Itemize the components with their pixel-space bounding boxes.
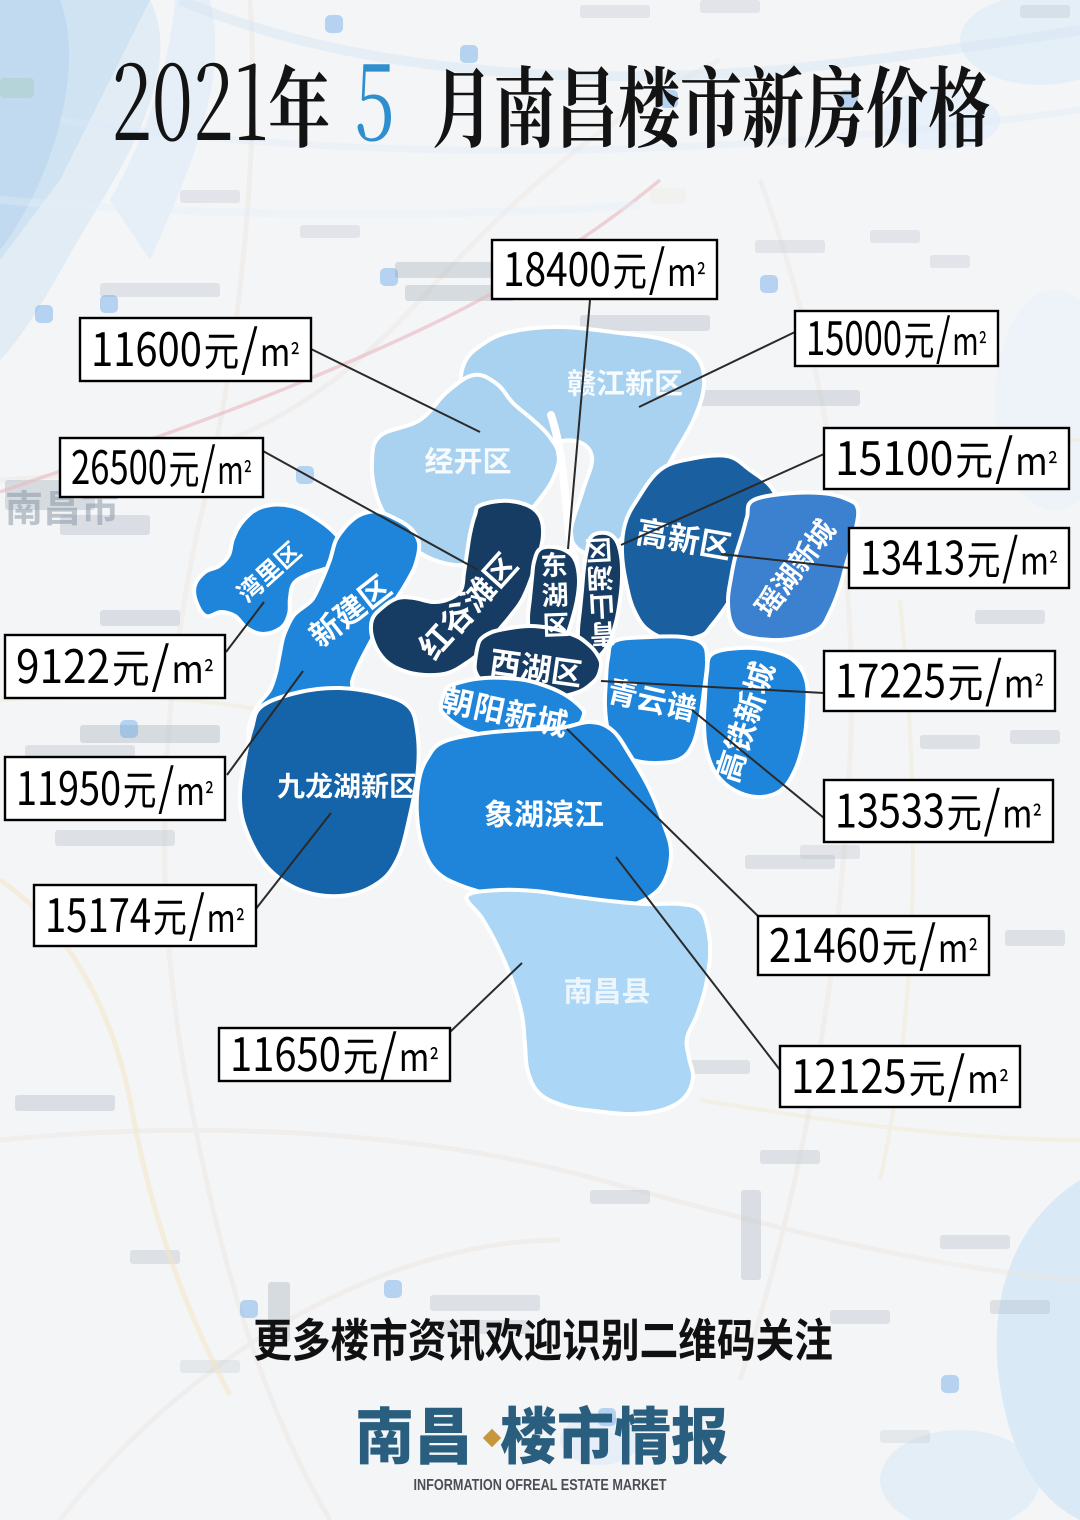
svg-text:INFORMATION OFREAL ESTATE MARK: INFORMATION OFREAL ESTATE MARKET [414,1477,667,1494]
